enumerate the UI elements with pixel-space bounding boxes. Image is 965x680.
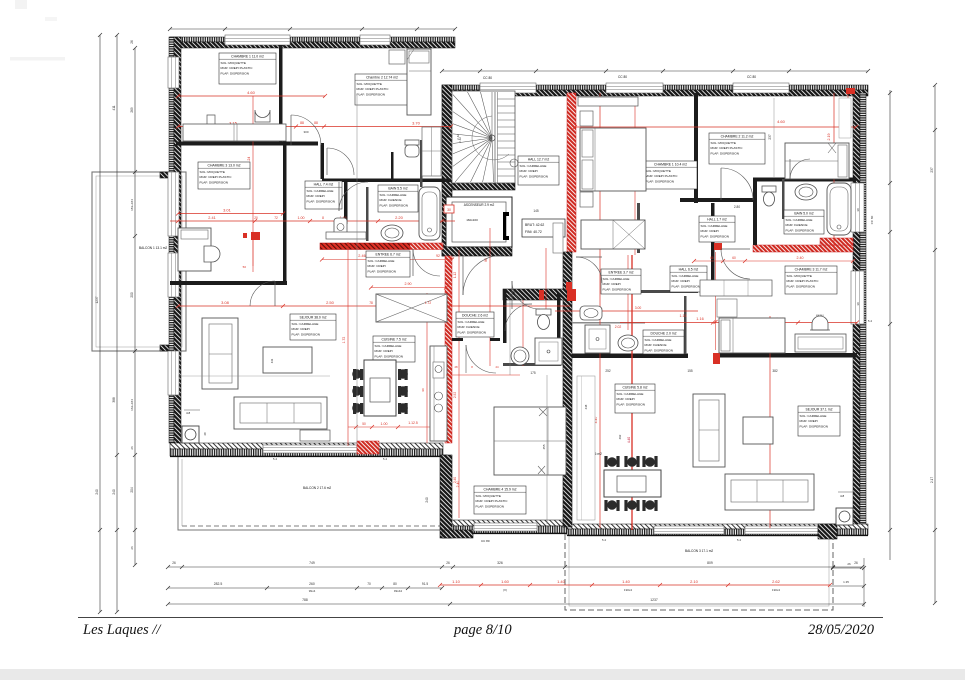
svg-text:2.92: 2.92 <box>453 392 457 398</box>
svg-text:4.8: 4.8 <box>840 494 845 498</box>
svg-text:BALCON 3 17.1 m2: BALCON 3 17.1 m2 <box>685 549 713 553</box>
svg-text:PLAF: DISPERSION: PLAF: DISPERSION <box>368 269 397 273</box>
svg-text:HALL 7.4 m2: HALL 7.4 m2 <box>314 182 334 186</box>
svg-text:SOL: MOQUETTE: SOL: MOQUETTE <box>787 274 812 278</box>
svg-text:1.72: 1.72 <box>342 337 346 344</box>
svg-text:26: 26 <box>446 561 450 565</box>
svg-text:78: 78 <box>369 301 373 305</box>
svg-text:200: 200 <box>130 292 134 298</box>
svg-text:1.00: 1.00 <box>381 422 388 426</box>
svg-text:26: 26 <box>130 40 134 44</box>
svg-text:ENTREE 6.7 m2: ENTREE 6.7 m2 <box>375 252 400 256</box>
svg-text:SEJOUR 37.1 m2: SEJOUR 37.1 m2 <box>806 407 833 411</box>
svg-text:30: 30 <box>447 208 451 212</box>
svg-text:SOL: MOQUETTE: SOL: MOQUETTE <box>357 82 382 86</box>
svg-text:3.08: 3.08 <box>221 300 230 305</box>
svg-text:1.16: 1.16 <box>680 314 687 318</box>
svg-text:SOL: CARRELAGE: SOL: CARRELAGE <box>786 218 813 222</box>
svg-text:CC 80: CC 80 <box>481 539 490 543</box>
svg-text:90: 90 <box>421 388 425 392</box>
svg-text:8: 8 <box>322 216 324 220</box>
svg-text:1237: 1237 <box>95 296 99 303</box>
svg-text:MUR: CREPI PLASTIC: MUR: CREPI PLASTIC <box>221 66 254 70</box>
svg-text:175: 175 <box>530 371 536 375</box>
svg-text:MUR: CREPI: MUR: CREPI <box>603 282 621 286</box>
svg-text:30: 30 <box>856 302 860 306</box>
svg-text:PLAF: DISPERSION: PLAF: DISPERSION <box>221 71 250 75</box>
svg-text:BALCON 1 13.1 m2: BALCON 1 13.1 m2 <box>139 246 167 250</box>
svg-text:PLAF: DISPERSION: PLAF: DISPERSION <box>786 228 815 232</box>
svg-text:CHAMBRE 3 11.7 m2: CHAMBRE 3 11.7 m2 <box>795 267 828 271</box>
svg-text:PLAF: DISPERSION: PLAF: DISPERSION <box>787 284 816 288</box>
svg-text:MUR: CREPI: MUR: CREPI <box>307 194 325 198</box>
svg-text:190x4: 190x4 <box>624 588 633 592</box>
svg-text:DOUCHE 2.0 m2: DOUCHE 2.0 m2 <box>650 331 676 335</box>
svg-text:MUR: CREPI PLASTIC: MUR: CREPI PLASTIC <box>200 175 233 179</box>
svg-text:CUISINE 5.8 m2: CUISINE 5.8 m2 <box>622 385 647 389</box>
svg-text:2.19: 2.19 <box>827 134 831 141</box>
svg-text:PLAF: DISPERSION: PLAF: DISPERSION <box>375 354 404 358</box>
svg-text:SOL: CARRELAGE: SOL: CARRELAGE <box>307 189 334 193</box>
svg-text:PLAF: DISPERSION: PLAF: DISPERSION <box>357 92 386 96</box>
svg-text:3.01: 3.01 <box>223 208 232 213</box>
svg-text:MUR: CREPI PLASTIC: MUR: CREPI PLASTIC <box>646 174 679 178</box>
svg-text:BAIN 5.5 m2: BAIN 5.5 m2 <box>388 186 407 190</box>
svg-text:SOL: CARRELAGE: SOL: CARRELAGE <box>292 322 319 326</box>
svg-text:SOL: CARRELAGE: SOL: CARRELAGE <box>380 193 407 197</box>
svg-text:SOL: CARRELAGE: SOL: CARRELAGE <box>375 344 402 348</box>
svg-text:2.02: 2.02 <box>615 325 622 329</box>
svg-text:PLAF: DISPERSION: PLAF: DISPERSION <box>476 504 505 508</box>
svg-text:28/05/2020: 28/05/2020 <box>808 622 875 638</box>
svg-text:DOUCHE 2.6 m2: DOUCHE 2.6 m2 <box>462 313 488 317</box>
svg-text:190x4: 190x4 <box>772 588 781 592</box>
svg-text:CC 80: CC 80 <box>618 75 627 79</box>
svg-text:260: 260 <box>309 582 315 586</box>
svg-text:4.40: 4.40 <box>627 437 631 443</box>
svg-text:237: 237 <box>768 134 772 140</box>
svg-text:SEJOUR 38.0 m2: SEJOUR 38.0 m2 <box>300 315 327 319</box>
svg-text:METRO: METRO <box>816 315 824 317</box>
svg-text:99x4: 99x4 <box>309 589 316 593</box>
svg-text:1.12: 1.12 <box>453 272 457 278</box>
svg-text:5.4: 5.4 <box>737 538 742 542</box>
svg-text:MUR: CREPI: MUR: CREPI <box>800 419 818 423</box>
svg-text:CUISINE 7.5 m2: CUISINE 7.5 m2 <box>381 337 406 341</box>
svg-text:4.8: 4.8 <box>186 411 191 415</box>
svg-text:5.4: 5.4 <box>868 319 873 323</box>
svg-text:MUR: CREPI: MUR: CREPI <box>520 169 538 173</box>
svg-text:80: 80 <box>393 582 397 586</box>
svg-text:1.10: 1.10 <box>452 579 461 584</box>
svg-text:SOL: CARRELAGE: SOL: CARRELAGE <box>368 259 395 263</box>
svg-text:388: 388 <box>112 397 116 403</box>
svg-text:240: 240 <box>112 489 116 495</box>
svg-text:48: 48 <box>203 432 207 436</box>
svg-text:PLAF: DISPERSION: PLAF: DISPERSION <box>380 203 409 207</box>
svg-text:300: 300 <box>303 130 308 134</box>
svg-text:CHAMBRE 2 11.2 m2: CHAMBRE 2 11.2 m2 <box>721 134 754 138</box>
svg-text:2.40: 2.40 <box>797 256 804 260</box>
svg-text:CHAMBRE 1 11.0 m2: CHAMBRE 1 11.0 m2 <box>231 54 264 58</box>
svg-text:SOL: CARRELAGE: SOL: CARRELAGE <box>645 338 672 342</box>
svg-text:PLAF: DISPERSION: PLAF: DISPERSION <box>458 330 487 334</box>
svg-text:2.42: 2.42 <box>456 134 460 140</box>
svg-text:1.40: 1.40 <box>622 579 631 584</box>
svg-text:MUR: CREPI PLASTIC: MUR: CREPI PLASTIC <box>711 146 744 150</box>
svg-text:2.46: 2.46 <box>358 254 365 258</box>
svg-text:240: 240 <box>425 497 429 503</box>
svg-text:492: 492 <box>618 434 622 439</box>
svg-text:BALCON 2 17.6 m2: BALCON 2 17.6 m2 <box>303 486 331 490</box>
svg-text:MUR: CREPI: MUR: CREPI <box>617 397 635 401</box>
svg-text:160x160: 160x160 <box>466 218 478 222</box>
svg-text:PLAF: DISPERSION: PLAF: DISPERSION <box>292 332 321 336</box>
svg-text:Les Laques //: Les Laques // <box>82 622 162 638</box>
svg-text:CC 80: CC 80 <box>483 76 492 80</box>
svg-text:88: 88 <box>314 121 318 125</box>
svg-text:50: 50 <box>243 265 247 269</box>
svg-text:PLAF: DISPERSION: PLAF: DISPERSION <box>672 284 701 288</box>
svg-text:PLAF: DISPERSION: PLAF: DISPERSION <box>701 234 730 238</box>
svg-text:PLAF: DISPERSION: PLAF: DISPERSION <box>200 180 229 184</box>
svg-text:1.72: 1.72 <box>425 301 431 305</box>
svg-text:Chambre 2 12.74 m2: Chambre 2 12.74 m2 <box>366 75 398 79</box>
svg-text:1.00: 1.00 <box>298 216 305 220</box>
svg-text:PLAF: DISPERSION: PLAF: DISPERSION <box>617 402 646 406</box>
svg-text:382: 382 <box>772 369 778 373</box>
svg-text:2.10: 2.10 <box>690 579 699 584</box>
svg-text:SOL: MOQUETTE: SOL: MOQUETTE <box>476 494 501 498</box>
svg-text:page 8/10: page 8/10 <box>453 622 512 638</box>
svg-text:2.90: 2.90 <box>405 282 412 286</box>
svg-text:1.60: 1.60 <box>501 579 510 584</box>
svg-text:788: 788 <box>302 598 308 602</box>
svg-text:SOL: CARRELAGE: SOL: CARRELAGE <box>672 274 699 278</box>
svg-text:CHAMBRE 3 13.0 m2: CHAMBRE 3 13.0 m2 <box>208 163 241 167</box>
svg-text:92: 92 <box>436 254 440 258</box>
svg-text:1.16: 1.16 <box>696 317 703 321</box>
svg-text:26: 26 <box>130 546 134 550</box>
svg-text:2.62: 2.62 <box>772 579 781 584</box>
svg-text:SOL: MOQUETTE: SOL: MOQUETTE <box>646 169 671 173</box>
svg-text:PLAF: DISPERSION: PLAF: DISPERSION <box>711 151 740 155</box>
svg-text:PLAF: DISPERSION: PLAF: DISPERSION <box>646 179 675 183</box>
svg-text:2.80: 2.80 <box>734 205 740 209</box>
svg-text:1237: 1237 <box>650 598 658 602</box>
svg-text:155: 155 <box>687 369 693 373</box>
svg-text:MUR: CREPI: MUR: CREPI <box>672 279 690 283</box>
svg-text:CC 80: CC 80 <box>870 215 874 224</box>
svg-text:26: 26 <box>172 561 176 565</box>
svg-text:MUR: CREPI PLASTIC: MUR: CREPI PLASTIC <box>787 279 820 283</box>
svg-text:26: 26 <box>847 562 851 566</box>
svg-text:28: 28 <box>454 365 458 369</box>
svg-text:1.12.5: 1.12.5 <box>408 421 418 425</box>
svg-text:BAIN 5.0 m2: BAIN 5.0 m2 <box>794 211 813 215</box>
svg-text:24: 24 <box>495 365 499 369</box>
svg-text:3.00: 3.00 <box>635 306 642 310</box>
svg-text:1.35: 1.35 <box>843 580 849 584</box>
svg-text:SOL: CARRELAGE: SOL: CARRELAGE <box>458 320 485 324</box>
svg-text:269: 269 <box>130 107 134 113</box>
svg-text:MUR: FAIENCE: MUR: FAIENCE <box>380 198 402 202</box>
svg-text:204: 204 <box>130 487 134 493</box>
svg-text:411: 411 <box>112 105 116 110</box>
svg-text:60: 60 <box>732 256 736 260</box>
svg-text:240: 240 <box>95 489 99 495</box>
svg-text:5.4: 5.4 <box>273 457 278 461</box>
svg-text:MUR: FAIENCE: MUR: FAIENCE <box>645 343 667 347</box>
svg-text:99x44: 99x44 <box>394 589 403 593</box>
svg-text:162+184: 162+184 <box>130 399 134 411</box>
svg-text:MUR: FAIENCE: MUR: FAIENCE <box>786 223 808 227</box>
svg-text:1.40: 1.40 <box>557 579 566 584</box>
svg-text:2.50: 2.50 <box>326 300 335 305</box>
svg-text:70: 70 <box>367 582 371 586</box>
svg-text:PLAF: DISPERSION: PLAF: DISPERSION <box>520 174 549 178</box>
svg-text:PLAF: DISPERSION: PLAF: DISPERSION <box>645 348 674 352</box>
svg-text:2.20: 2.20 <box>395 215 404 220</box>
svg-text:26: 26 <box>130 446 134 450</box>
svg-text:749: 749 <box>309 561 315 565</box>
svg-text:PLAF: DISPERSION: PLAF: DISPERSION <box>800 424 829 428</box>
svg-text:88: 88 <box>300 121 304 125</box>
svg-text:SOL: CARRELAGE: SOL: CARRELAGE <box>603 277 630 281</box>
svg-text:3.70: 3.70 <box>412 121 421 126</box>
svg-text:PLAF: DISPERSION: PLAF: DISPERSION <box>603 287 632 291</box>
svg-text:HALL 12.7 m2: HALL 12.7 m2 <box>528 157 550 161</box>
svg-text:FINI: 40.72: FINI: 40.72 <box>525 230 542 234</box>
svg-text:CHAMBRE 4 15.9 m2: CHAMBRE 4 15.9 m2 <box>484 487 517 491</box>
svg-text:SOL: CARRELAGE: SOL: CARRELAGE <box>701 224 728 228</box>
svg-text:MUR: CREPI: MUR: CREPI <box>701 229 719 233</box>
svg-text:HALL 6.5 m2: HALL 6.5 m2 <box>679 267 699 271</box>
svg-text:2.17: 2.17 <box>930 477 934 483</box>
svg-text:MUR: CREPI: MUR: CREPI <box>368 264 386 268</box>
svg-text:26: 26 <box>854 561 858 565</box>
svg-text:HALL 1.7 m2: HALL 1.7 m2 <box>707 217 727 221</box>
svg-text:145: 145 <box>533 209 539 213</box>
svg-text:183+184: 183+184 <box>130 199 134 211</box>
svg-text:MUR: CREPI PLASTIC: MUR: CREPI PLASTIC <box>476 499 509 503</box>
svg-text:252: 252 <box>605 369 611 373</box>
svg-text:809: 809 <box>707 561 713 565</box>
svg-text:91.5: 91.5 <box>422 582 428 586</box>
svg-text:MUR: FAIENCE: MUR: FAIENCE <box>458 325 480 329</box>
svg-text:237: 237 <box>930 167 934 173</box>
svg-text:326: 326 <box>497 561 503 565</box>
svg-text:(X): (X) <box>503 588 507 592</box>
svg-text:SOL: MOQUETTE: SOL: MOQUETTE <box>221 61 246 65</box>
svg-text:SOL: MOQUETTE: SOL: MOQUETTE <box>711 141 736 145</box>
svg-text:72: 72 <box>274 216 278 220</box>
svg-text:SOL: CARRELAGE: SOL: CARRELAGE <box>800 414 827 418</box>
svg-text:SOL: CARRELAGE: SOL: CARRELAGE <box>617 392 644 396</box>
svg-text:MUR: CREPI PLASTIC: MUR: CREPI PLASTIC <box>357 87 390 91</box>
svg-text:4.60: 4.60 <box>247 90 256 95</box>
svg-text:SOL: MOQUETTE: SOL: MOQUETTE <box>200 170 225 174</box>
svg-text:443: 443 <box>270 358 274 363</box>
svg-text:ASCENSEUR 2.9 m2: ASCENSEUR 2.9 m2 <box>464 203 495 207</box>
svg-text:5.4: 5.4 <box>383 457 388 461</box>
svg-text:PLAF: DISPERSION: PLAF: DISPERSION <box>307 199 336 203</box>
svg-text:50: 50 <box>362 422 366 426</box>
svg-text:30: 30 <box>856 208 860 212</box>
svg-text:BRUT: 42.62: BRUT: 42.62 <box>525 223 544 227</box>
svg-text:282.5: 282.5 <box>214 582 223 586</box>
svg-text:ENTREE 3.7 m2: ENTREE 3.7 m2 <box>608 270 633 274</box>
svg-text:CHAMBRE 1 10.4 m2: CHAMBRE 1 10.4 m2 <box>654 162 687 166</box>
svg-text:60: 60 <box>710 256 714 260</box>
svg-text:5.4: 5.4 <box>602 538 607 542</box>
svg-text:CC 80: CC 80 <box>747 75 756 79</box>
svg-text:2.41: 2.41 <box>208 216 215 220</box>
svg-text:MUR: CREPI: MUR: CREPI <box>375 349 393 353</box>
svg-text:MUR: CREPI: MUR: CREPI <box>292 327 310 331</box>
svg-text:SOL: CARRELAGE: SOL: CARRELAGE <box>520 164 547 168</box>
svg-text:448: 448 <box>584 404 588 409</box>
svg-text:2.40: 2.40 <box>453 477 457 483</box>
svg-text:4.60: 4.60 <box>777 119 786 124</box>
svg-text:455: 455 <box>542 444 546 449</box>
svg-text:20: 20 <box>446 282 450 286</box>
